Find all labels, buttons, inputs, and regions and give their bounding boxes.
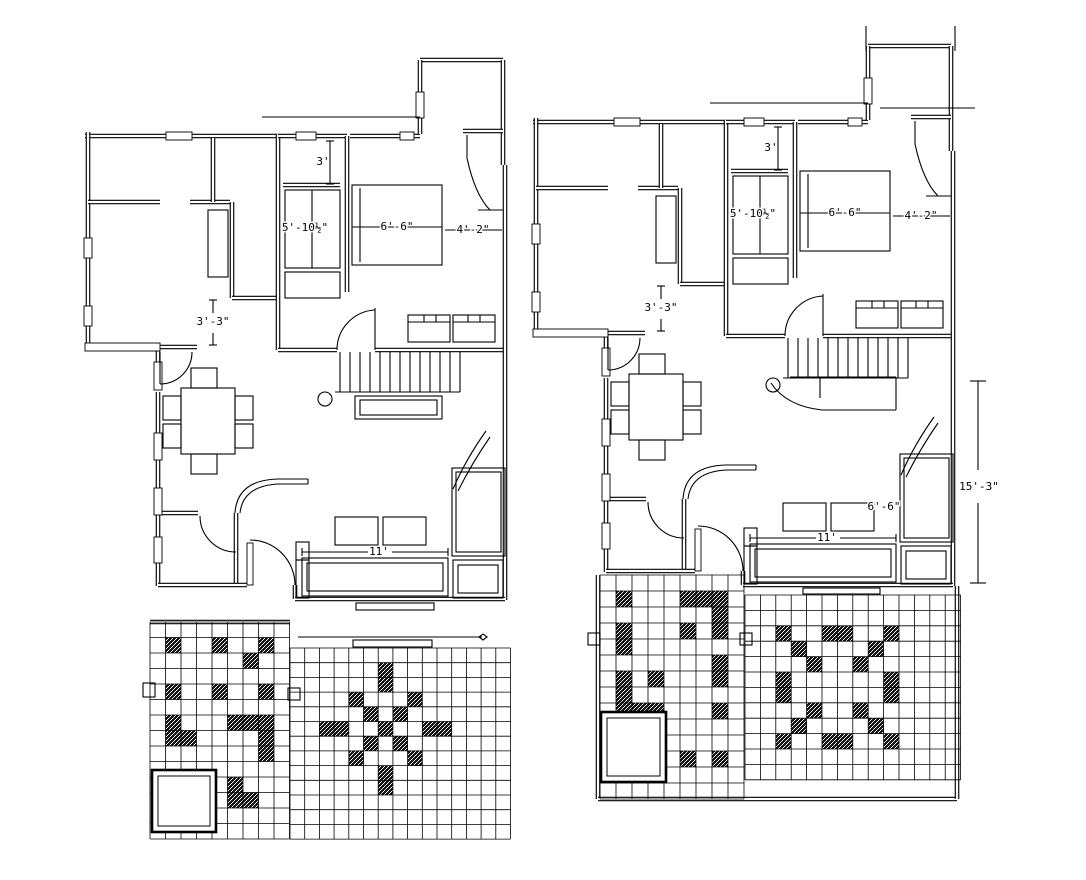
tile-grid-main [290,648,511,839]
dim-passage-label: 3'-3" [196,315,229,328]
dim-closet-label: 3' [764,141,777,154]
plan-structure [84,60,505,600]
dimension-labels: 3'5'-10½"6'-6"4'-2"3'-3"11'6'-6"15'-3" [644,141,998,544]
balcony-room [152,770,216,832]
left-floor-plan: 3'5'-10½"6'-6"4'-2"3'-3"11' [84,60,511,839]
dim-wardrobe-label: 5'-10½" [282,221,328,234]
dim-bed-label: 6'-6" [380,220,413,233]
dim-bed-clearance-label: 4'-2" [456,223,489,236]
dim-sofa-depth-label: 6'-6" [867,500,900,513]
tile-grid-main [745,595,961,780]
windows [532,78,872,571]
walls [85,60,505,600]
dim-living-length-label: 15'-3" [959,480,999,493]
dim-bed-label: 6'-6" [828,206,861,219]
dim-wardrobe-label: 5'-10½" [730,207,776,220]
dimension-labels: 3'5'-10½"6'-6"4'-2"3'-3"11' [196,155,489,558]
dim-sofa-label: 11' [369,545,389,558]
dim-passage-label: 3'-3" [644,301,677,314]
dim-sofa-label: 11' [817,531,837,544]
floor-plan-canvas: 3'5'-10½"6'-6"4'-2"3'-3"11' 3'5'-10½"6'-… [0,0,1086,880]
right-floor-plan: 3'5'-10½"6'-6"4'-2"3'-3"11'6'-6"15'-3" [532,26,999,799]
windows [84,92,424,585]
dim-closet-label: 3' [316,155,329,168]
left-plan-extras [143,396,487,700]
cad-drawing-page: 3'5'-10½"6'-6"4'-2"3'-3"11' 3'5'-10½"6'-… [0,0,1086,880]
balcony-room [601,712,666,782]
dim-bed-clearance-label: 4'-2" [904,209,937,222]
